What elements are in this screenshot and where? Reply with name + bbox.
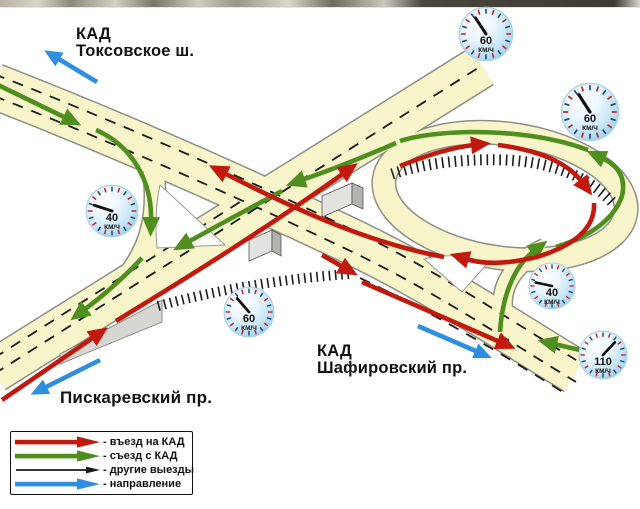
label-kad-toksovskoe: КАД Токсовское ш. — [76, 26, 194, 60]
gauge-unit: КМ/Ч — [559, 125, 621, 132]
interchange-diagram: КАД Токсовское ш. Пискаревский пр. КАД Ш… — [0, 0, 640, 509]
speed-gauge-loop-north: 60 КМ/Ч — [457, 5, 515, 63]
legend-item-entry: - въезд на КАД — [11, 435, 192, 448]
gauge-value: 60 — [457, 36, 515, 47]
speed-gauge-loop-east: 60 КМ/Ч — [559, 81, 621, 143]
legend-label-direction: - направление — [103, 478, 181, 490]
legend-label-entry: - въезд на КАД — [103, 436, 185, 448]
legend-label-other: - другие выезды — [103, 464, 194, 476]
gauge-value: 40 — [527, 288, 577, 299]
blue-arrow-icon — [11, 478, 103, 490]
gauge-unit: КМ/Ч — [222, 325, 276, 332]
legend-box: - въезд на КАД - съезд с КАД - другие вы… — [10, 431, 193, 495]
gauge-unit: КМ/Ч — [84, 224, 140, 231]
gauge-unit: КМ/Ч — [527, 299, 577, 306]
speed-gauge-bridge-south: 60 КМ/Ч — [222, 285, 276, 339]
speed-gauge-west-ramp: 40 КМ/Ч — [84, 183, 140, 239]
gauge-value: 110 — [577, 357, 629, 368]
speed-gauge-mainline: 110 КМ/Ч — [577, 329, 629, 381]
label-kad-line2: КАД — [317, 342, 352, 360]
gauge-value: 60 — [559, 114, 621, 125]
label-kad-line: КАД — [76, 25, 111, 43]
black-arrow-icon — [11, 464, 103, 476]
gauge-value: 40 — [84, 213, 140, 224]
speed-gauge-se-ramp: 40 КМ/Ч — [527, 261, 577, 311]
gauge-unit: КМ/Ч — [457, 47, 515, 54]
label-shafirovsky-line: Шафировский пр. — [317, 359, 467, 377]
red-arrow-icon — [11, 436, 103, 448]
gauge-value: 60 — [222, 314, 276, 325]
legend-label-exit: - съезд с КАД — [103, 450, 177, 462]
legend-item-exit: - съезд с КАД — [11, 449, 192, 462]
green-arrow-icon — [11, 450, 103, 462]
label-toksovskoe-line: Токсовское ш. — [76, 42, 194, 60]
legend-item-direction: - направление — [11, 478, 192, 491]
label-piskarevsky: Пискаревский пр. — [60, 389, 212, 406]
legend-item-other: - другие выезды — [11, 464, 192, 477]
label-kad-shafirovsky: КАД Шафировский пр. — [317, 343, 467, 377]
gauge-unit: КМ/Ч — [577, 368, 629, 375]
